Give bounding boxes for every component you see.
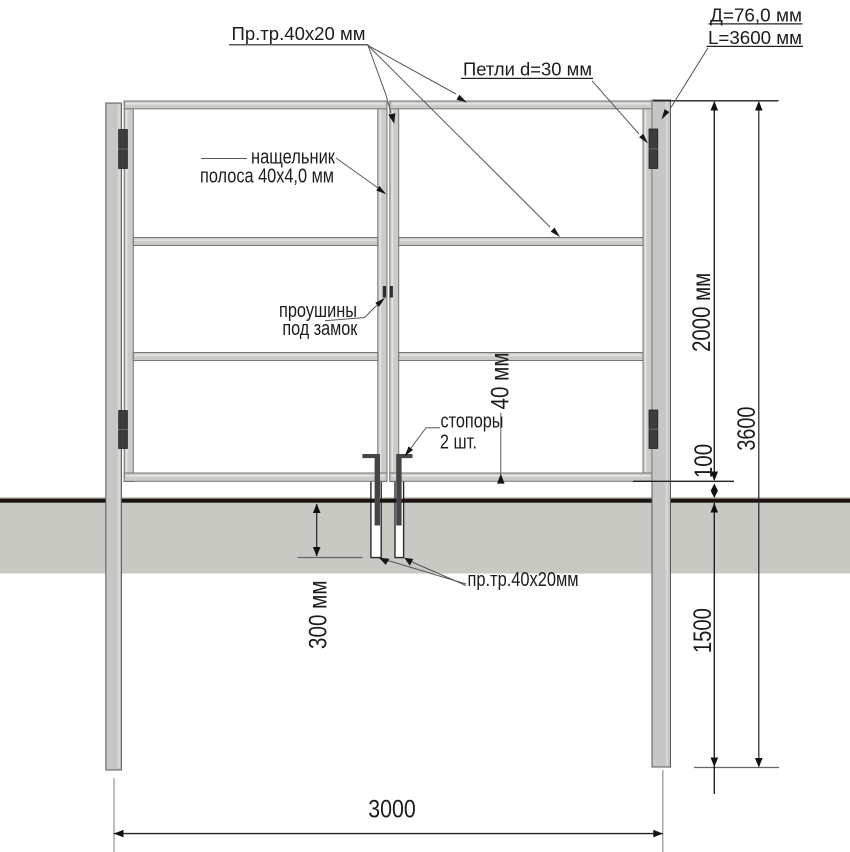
- svg-text:L=3600 мм: L=3600 мм: [708, 27, 802, 48]
- svg-text:2 шт.: 2 шт.: [440, 432, 477, 454]
- svg-text:пр.тр.40х20мм: пр.тр.40х20мм: [468, 569, 579, 591]
- svg-text:2000 мм: 2000 мм: [688, 273, 716, 352]
- svg-text:Петли d=30 мм: Петли d=30 мм: [463, 59, 592, 80]
- svg-text:3600: 3600: [733, 407, 761, 451]
- svg-text:под замок: под замок: [282, 318, 357, 340]
- svg-text:300 мм: 300 мм: [305, 580, 333, 649]
- svg-text:1500: 1500: [689, 608, 717, 653]
- svg-text:100: 100: [690, 444, 718, 478]
- svg-text:Д=76,0 мм: Д=76,0 мм: [710, 4, 802, 25]
- svg-text:40 мм: 40 мм: [487, 353, 515, 410]
- svg-text:Пр.тр.40х20 мм: Пр.тр.40х20 мм: [232, 23, 366, 44]
- svg-text:полоса 40х4,0 мм: полоса 40х4,0 мм: [200, 166, 334, 188]
- svg-text:3000: 3000: [368, 796, 416, 824]
- svg-text:стопоры: стопоры: [441, 411, 504, 433]
